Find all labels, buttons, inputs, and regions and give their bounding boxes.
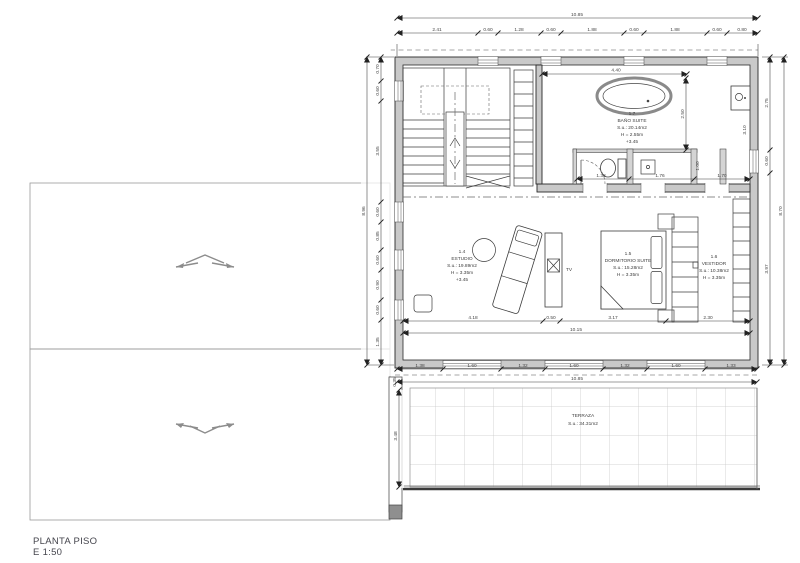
title-block: PLANTA PISO E 1:50 xyxy=(33,536,97,558)
svg-text:0.60: 0.60 xyxy=(483,27,493,33)
svg-text:0.80: 0.80 xyxy=(737,27,747,33)
svg-text:DORMITORIO SUITE: DORMITORIO SUITE xyxy=(605,258,652,264)
roof-upper xyxy=(30,183,390,349)
svg-text:0.60: 0.60 xyxy=(629,27,639,33)
svg-text:0.60: 0.60 xyxy=(375,305,381,315)
roof-slope-arrow-lower xyxy=(176,423,234,433)
svg-text:4.40: 4.40 xyxy=(611,68,621,74)
svg-text:0.60: 0.60 xyxy=(375,86,381,96)
svg-text:2.75: 2.75 xyxy=(764,98,770,108)
svg-text:0.60: 0.60 xyxy=(546,27,556,33)
svg-text:1.00: 1.00 xyxy=(695,161,701,171)
svg-text:2.50: 2.50 xyxy=(680,109,686,119)
svg-text:TERRAZA: TERRAZA xyxy=(572,413,595,419)
svg-text:0.35: 0.35 xyxy=(392,377,398,387)
svg-text:0.85: 0.85 xyxy=(375,231,381,241)
svg-text:1.70: 1.70 xyxy=(717,173,727,179)
svg-text:H = 3.35m: H = 3.35m xyxy=(703,275,725,281)
svg-text:10.15: 10.15 xyxy=(570,327,582,333)
svg-text:0.70: 0.70 xyxy=(375,64,381,74)
dim-right: 2.75 0.60 3.97 8.70 xyxy=(762,55,788,368)
svg-text:S.u.: 19.89m2: S.u.: 19.89m2 xyxy=(447,263,477,269)
svg-text:2.30: 2.30 xyxy=(703,315,713,321)
svg-text:1.60: 1.60 xyxy=(569,363,579,369)
svg-text:1.6: 1.6 xyxy=(711,254,718,260)
svg-text:4.18: 4.18 xyxy=(468,315,478,321)
svg-text:1.38: 1.38 xyxy=(596,173,606,179)
svg-text:1.88: 1.88 xyxy=(587,27,597,33)
svg-text:1.76: 1.76 xyxy=(655,173,665,179)
svg-text:1.35: 1.35 xyxy=(375,337,381,347)
svg-text:10.85: 10.85 xyxy=(571,376,583,382)
svg-text:1.28: 1.28 xyxy=(514,27,524,33)
svg-text:1.4: 1.4 xyxy=(459,249,466,255)
floor-plan-sheet: TV 10.85 2.41 0.60 1.28 0.60 1.88 0.60 1… xyxy=(0,0,800,563)
svg-text:BAÑO SUITE: BAÑO SUITE xyxy=(617,117,646,124)
svg-text:3.55: 3.55 xyxy=(375,146,381,156)
svg-text:3.10: 3.10 xyxy=(742,125,748,135)
window-right xyxy=(750,150,759,173)
svg-text:0.60: 0.60 xyxy=(375,255,381,265)
svg-text:1.60: 1.60 xyxy=(467,363,477,369)
svg-text:VESTIDOR: VESTIDOR xyxy=(702,261,727,267)
svg-text:1.32: 1.32 xyxy=(620,363,630,369)
svg-text:10.85: 10.85 xyxy=(571,12,583,18)
svg-text:0.60: 0.60 xyxy=(764,156,770,166)
svg-text:S.u.: 15.28m2: S.u.: 15.28m2 xyxy=(613,265,643,271)
svg-text:1.7: 1.7 xyxy=(629,111,636,117)
washbasin xyxy=(731,86,750,110)
terrace-paving xyxy=(403,388,760,489)
page-title: PLANTA PISO xyxy=(33,536,97,547)
svg-text:1.33: 1.33 xyxy=(726,363,736,369)
dim-top: 10.85 2.41 0.60 1.28 0.60 1.88 0.60 1.88… xyxy=(395,12,761,56)
svg-text:S.u.: 34.31m2: S.u.: 34.31m2 xyxy=(568,421,598,427)
svg-text:1.32: 1.32 xyxy=(518,363,528,369)
svg-text:3.97: 3.97 xyxy=(764,264,770,274)
svg-text:8.70: 8.70 xyxy=(778,206,784,216)
svg-text:1.88: 1.88 xyxy=(670,27,680,33)
roof-slope-arrow-upper xyxy=(176,255,234,268)
svg-text:2.41: 2.41 xyxy=(432,27,442,33)
svg-text:S.u.: 20.14m2: S.u.: 20.14m2 xyxy=(617,125,647,131)
svg-text:ESTUDIO: ESTUDIO xyxy=(451,256,473,262)
svg-text:3.17: 3.17 xyxy=(608,315,618,321)
svg-text:0.60: 0.60 xyxy=(375,207,381,217)
svg-text:1.5: 1.5 xyxy=(625,251,632,257)
tv-label: TV xyxy=(566,267,573,273)
svg-text:0.50: 0.50 xyxy=(546,315,556,321)
svg-text:8.96: 8.96 xyxy=(361,206,367,216)
scale-label: E 1:50 xyxy=(33,547,62,558)
roof-lower xyxy=(30,349,390,520)
svg-text:1.60: 1.60 xyxy=(671,363,681,369)
svg-text:+3.45: +3.45 xyxy=(456,277,468,283)
svg-text:0.90: 0.90 xyxy=(375,280,381,290)
svg-text:H = 3.35m: H = 3.35m xyxy=(451,270,473,276)
svg-text:H = 3.35m: H = 3.35m xyxy=(617,272,639,278)
exterior-wall xyxy=(395,57,758,368)
svg-text:S.u.: 10.38m2: S.u.: 10.38m2 xyxy=(699,268,729,274)
svg-text:+3.45: +3.45 xyxy=(626,139,638,145)
svg-text:3.48: 3.48 xyxy=(393,431,399,441)
svg-text:1.38: 1.38 xyxy=(415,363,425,369)
svg-text:H = 2.55m: H = 2.55m xyxy=(621,132,643,138)
tv-unit xyxy=(545,233,562,307)
floor-plan-drawing: TV 10.85 2.41 0.60 1.28 0.60 1.88 0.60 1… xyxy=(0,0,800,563)
bathtub xyxy=(597,78,671,114)
svg-text:0.60: 0.60 xyxy=(712,27,722,33)
